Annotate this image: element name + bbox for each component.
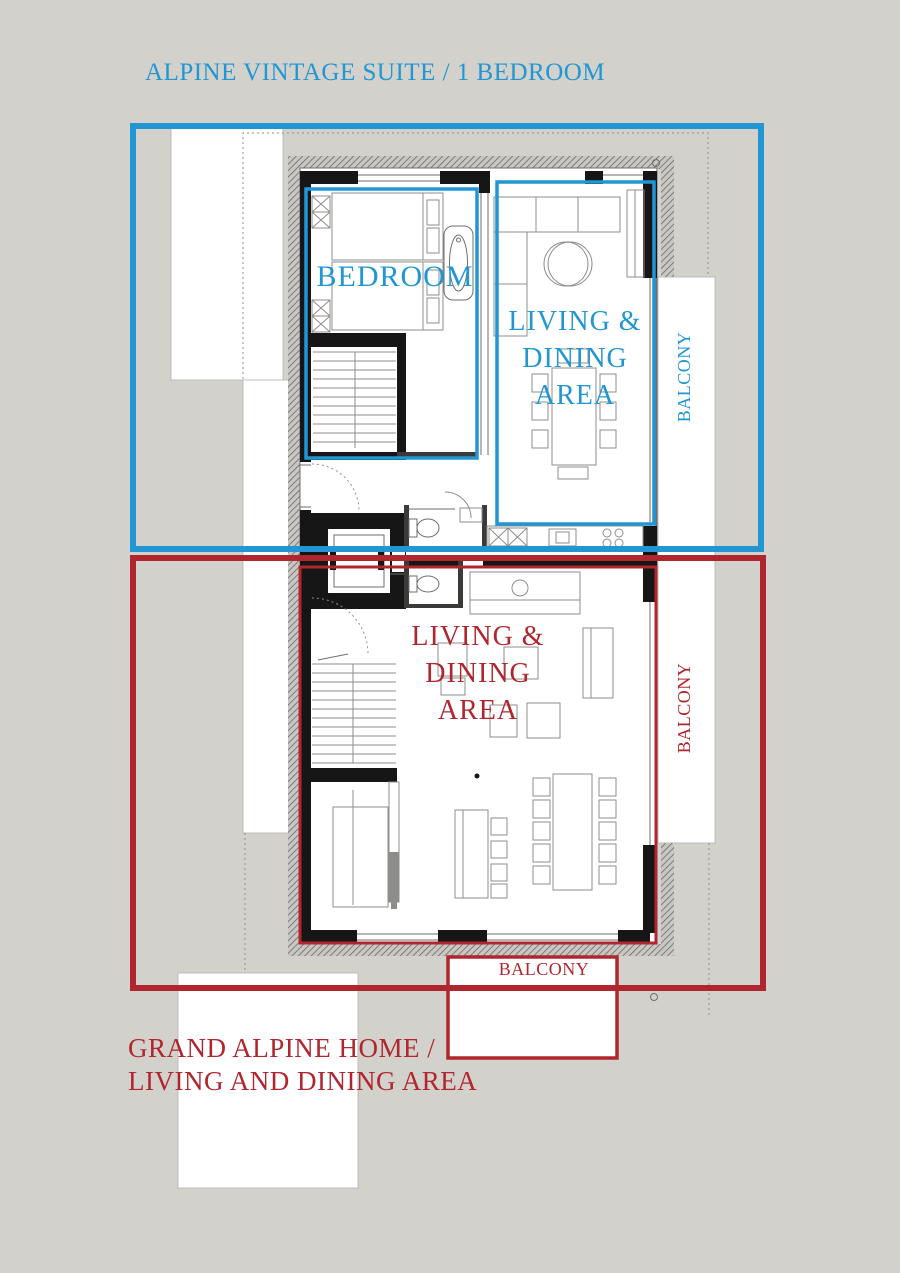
home-living-label-line3: AREA bbox=[438, 695, 518, 726]
home-living-label-line2: DINING bbox=[425, 658, 531, 689]
suite-living-label-line1: LIVING & bbox=[508, 306, 641, 337]
terrace-top-left bbox=[171, 128, 283, 380]
suite-living-label-line3: AREA bbox=[535, 380, 615, 411]
terrace-left-strip bbox=[243, 380, 289, 833]
floorplan-page: ALPINE VINTAGE SUITE / 1 BEDROOM BEDROOM… bbox=[0, 0, 900, 1273]
home-living-label-line1: LIVING & bbox=[411, 621, 544, 652]
suite-living-label-line2: DINING bbox=[522, 343, 628, 374]
suite-bedroom-label: BEDROOM bbox=[316, 260, 473, 293]
suite-balcony-label: BALCONY bbox=[674, 332, 694, 423]
page-caption-line1: GRAND ALPINE HOME / bbox=[128, 1033, 435, 1063]
home-balcony-side-label: BALCONY bbox=[674, 663, 694, 754]
page-caption-line2: LIVING AND DINING AREA bbox=[128, 1066, 477, 1096]
floor-plan-image: ALPINE VINTAGE SUITE / 1 BEDROOM BEDROOM… bbox=[0, 0, 900, 1273]
home-balcony-bottom-label: BALCONY bbox=[499, 959, 590, 979]
page-title: ALPINE VINTAGE SUITE / 1 BEDROOM bbox=[145, 59, 605, 86]
